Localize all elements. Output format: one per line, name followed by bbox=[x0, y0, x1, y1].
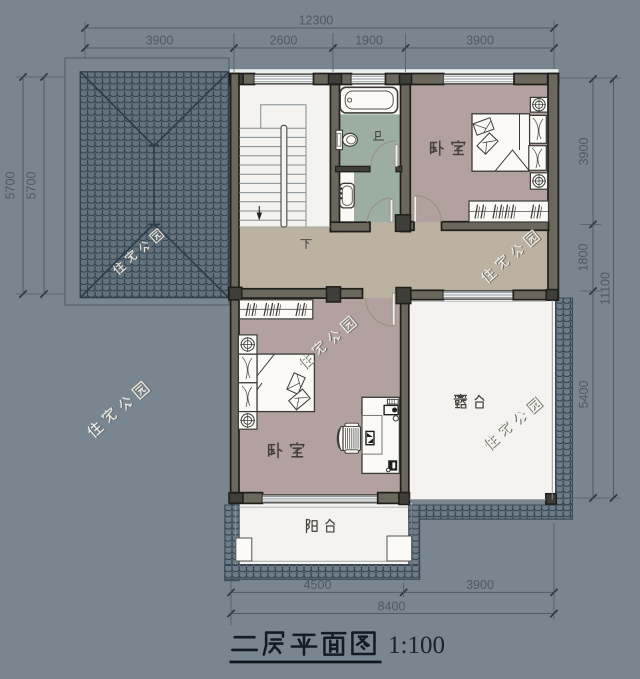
svg-text:8400: 8400 bbox=[378, 600, 406, 614]
svg-text:5700: 5700 bbox=[4, 172, 18, 200]
svg-text:11100: 11100 bbox=[599, 272, 613, 305]
svg-text:1800: 1800 bbox=[577, 244, 591, 272]
svg-text:4500: 4500 bbox=[304, 578, 332, 592]
svg-text:5700: 5700 bbox=[25, 172, 39, 200]
svg-text:3900: 3900 bbox=[466, 34, 494, 48]
svg-text:3900: 3900 bbox=[146, 34, 174, 48]
svg-text:1900: 1900 bbox=[355, 34, 383, 48]
svg-text:3900: 3900 bbox=[577, 138, 591, 166]
svg-text:12300: 12300 bbox=[299, 14, 334, 28]
svg-text:5400: 5400 bbox=[577, 381, 591, 409]
svg-text:3900: 3900 bbox=[466, 578, 494, 592]
svg-text:1:100: 1:100 bbox=[388, 632, 445, 659]
svg-text:2600: 2600 bbox=[270, 34, 298, 48]
